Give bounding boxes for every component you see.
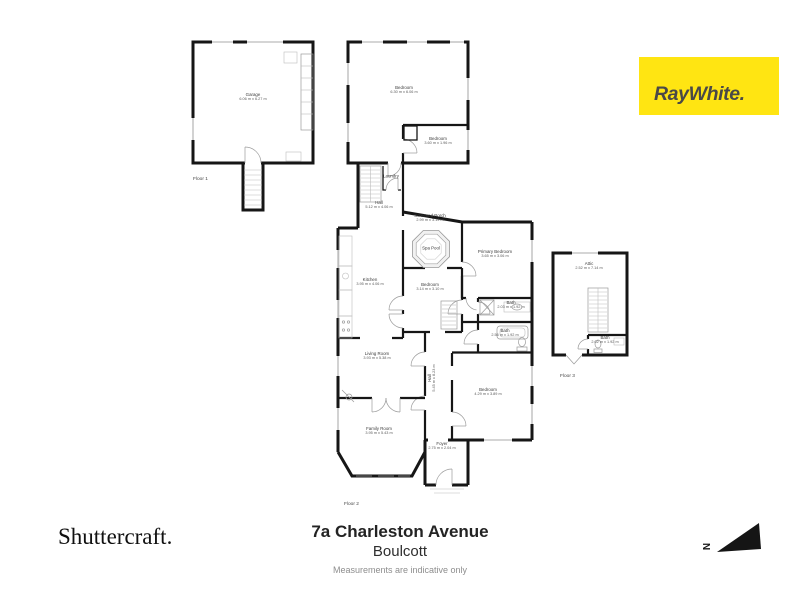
room-label-bath: Bath2.03 m x 1.92 m	[497, 300, 524, 310]
room-label-garage: Garage6.06 m x 6.27 m	[239, 92, 266, 102]
floor-caption: Floor 3	[560, 374, 575, 379]
address-line2: Boulcott	[0, 543, 800, 560]
room-label-bedroom: Bedroom3.60 m x 1.96 m	[424, 136, 451, 146]
room-label-bedroom: Bedroom6.30 m x 6.06 m	[390, 85, 417, 95]
room-label-bath: Bath2.02 m x 1.92 m	[591, 335, 618, 345]
floor1-plan	[193, 42, 313, 210]
room-label-hall: Hall5.45 m x 8.23 m	[427, 364, 437, 391]
room-label-living-room: Living Room3.93 m x 5.38 m	[363, 351, 390, 361]
address-block: 7a Charleston Avenue Boulcott Measuremen…	[0, 522, 800, 575]
measurements-disclaimer: Measurements are indicative only	[0, 565, 800, 575]
room-label-foyer: Foyer2.75 m x 2.04 m	[428, 441, 455, 451]
room-label-bath: Bath2.56 m x 1.92 m	[491, 328, 518, 338]
floor-caption: Floor 1	[193, 177, 208, 182]
room-label-hall: Hall5.12 m x 4.06 m	[365, 200, 392, 210]
room-label-attic: Attic2.52 m x 7.14 m	[575, 261, 602, 271]
room-label-laundry: Laundry	[383, 173, 399, 178]
room-label-spa-pool: Spa Pool	[422, 245, 440, 250]
floor-caption: Floor 2	[344, 502, 359, 507]
north-arrow-icon	[695, 513, 775, 568]
room-label-primary-bedroom: Primary Bedroom3.65 m x 3.06 m	[478, 249, 512, 259]
raywhite-logo: RayWhite.	[639, 57, 779, 115]
room-label-kitchen: Kitchen3.95 m x 4.06 m	[356, 277, 383, 287]
address-line1: 7a Charleston Avenue	[0, 522, 800, 542]
room-label-bedroom: Bedroom3.14 m x 3.10 m	[416, 282, 443, 292]
room-label-family-room: Family Room3.95 m x 5.43 m	[365, 426, 392, 436]
room-label-bedroom: Bedroom4.29 m x 3.89 m	[474, 387, 501, 397]
floorplan-page: Floor 1Garage6.06 m x 6.27 mFloor 2Bedro…	[0, 0, 800, 600]
compass: N	[695, 513, 775, 568]
north-label: N	[702, 543, 713, 550]
room-label-screened-porch: Screened Porch2.99 m x 3.19 m	[414, 213, 446, 223]
raywhite-logo-text: RayWhite.	[654, 83, 745, 106]
